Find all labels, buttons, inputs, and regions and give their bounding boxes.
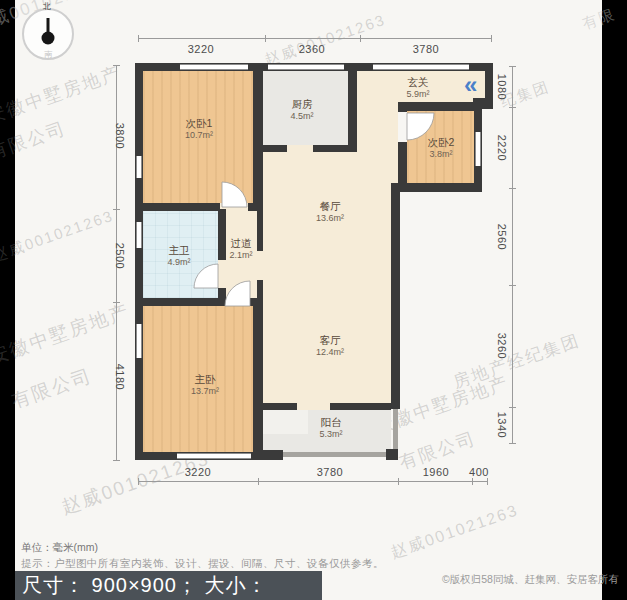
dim-label-bottom-3: 1960 <box>406 466 466 478</box>
dim-label-right-1: 1080 <box>496 67 508 107</box>
door-bedroom2 <box>407 113 434 140</box>
dim-line-top <box>138 38 492 39</box>
dim-tick <box>509 443 516 444</box>
dim-tick <box>138 478 139 485</box>
dim-tick <box>509 407 516 408</box>
dim-tick <box>509 107 516 108</box>
dim-label-top-1: 3220 <box>171 43 231 55</box>
image-size-overlay: 尺寸： 900×900； 大小： 240KB <box>15 571 322 600</box>
dim-label-top-2: 2360 <box>282 43 342 55</box>
dim-line-right <box>512 66 513 443</box>
hint-note: 提示：户型图中所有室内装饰、设计、摆设、间隔、尺寸、设备仅供参考。 <box>21 557 384 571</box>
dim-label-right-4: 3260 <box>496 326 508 366</box>
dim-label-top-3: 3780 <box>396 43 456 55</box>
dim-label-left-3: 4180 <box>114 357 126 397</box>
dim-tick <box>265 35 266 42</box>
dim-tick <box>113 65 120 66</box>
dim-tick <box>258 478 259 485</box>
dim-label-bottom-2: 3780 <box>300 466 360 478</box>
dim-label-right-2: 2220 <box>496 128 508 168</box>
dim-line-bottom <box>138 481 488 482</box>
dim-tick <box>472 478 473 485</box>
dim-label-right-5: 1340 <box>496 405 508 445</box>
dim-tick <box>509 66 516 67</box>
door-master-bedroom <box>225 281 250 306</box>
dim-label-left-2: 2500 <box>114 236 126 276</box>
unit-note: 单位：毫米(mm) <box>21 541 98 555</box>
door-bathroom <box>194 264 218 288</box>
dim-label-bottom-4: 400 <box>460 466 498 478</box>
dim-tick <box>113 209 120 210</box>
dim-tick <box>113 302 120 303</box>
dim-tick <box>113 460 120 461</box>
door-arcs-layer <box>0 0 627 600</box>
dim-tick <box>487 478 488 485</box>
dim-label-bottom-1: 3220 <box>168 466 228 478</box>
floorplan-screenshot: { "compass": {"north_label": "北", "south… <box>0 0 627 600</box>
dim-tick <box>491 35 492 42</box>
dim-tick <box>360 35 361 42</box>
dim-label-left-1: 3800 <box>114 116 126 156</box>
dim-label-right-3: 2560 <box>496 217 508 257</box>
door-bedroom1 <box>222 182 247 207</box>
copyright-note: ©版权归58同城、赶集网、安居客所有 <box>442 573 619 587</box>
dim-tick <box>509 188 516 189</box>
dim-tick <box>509 285 516 286</box>
entry-arrow-icon: « <box>464 71 475 99</box>
dim-tick <box>138 35 139 42</box>
dim-tick <box>398 478 399 485</box>
